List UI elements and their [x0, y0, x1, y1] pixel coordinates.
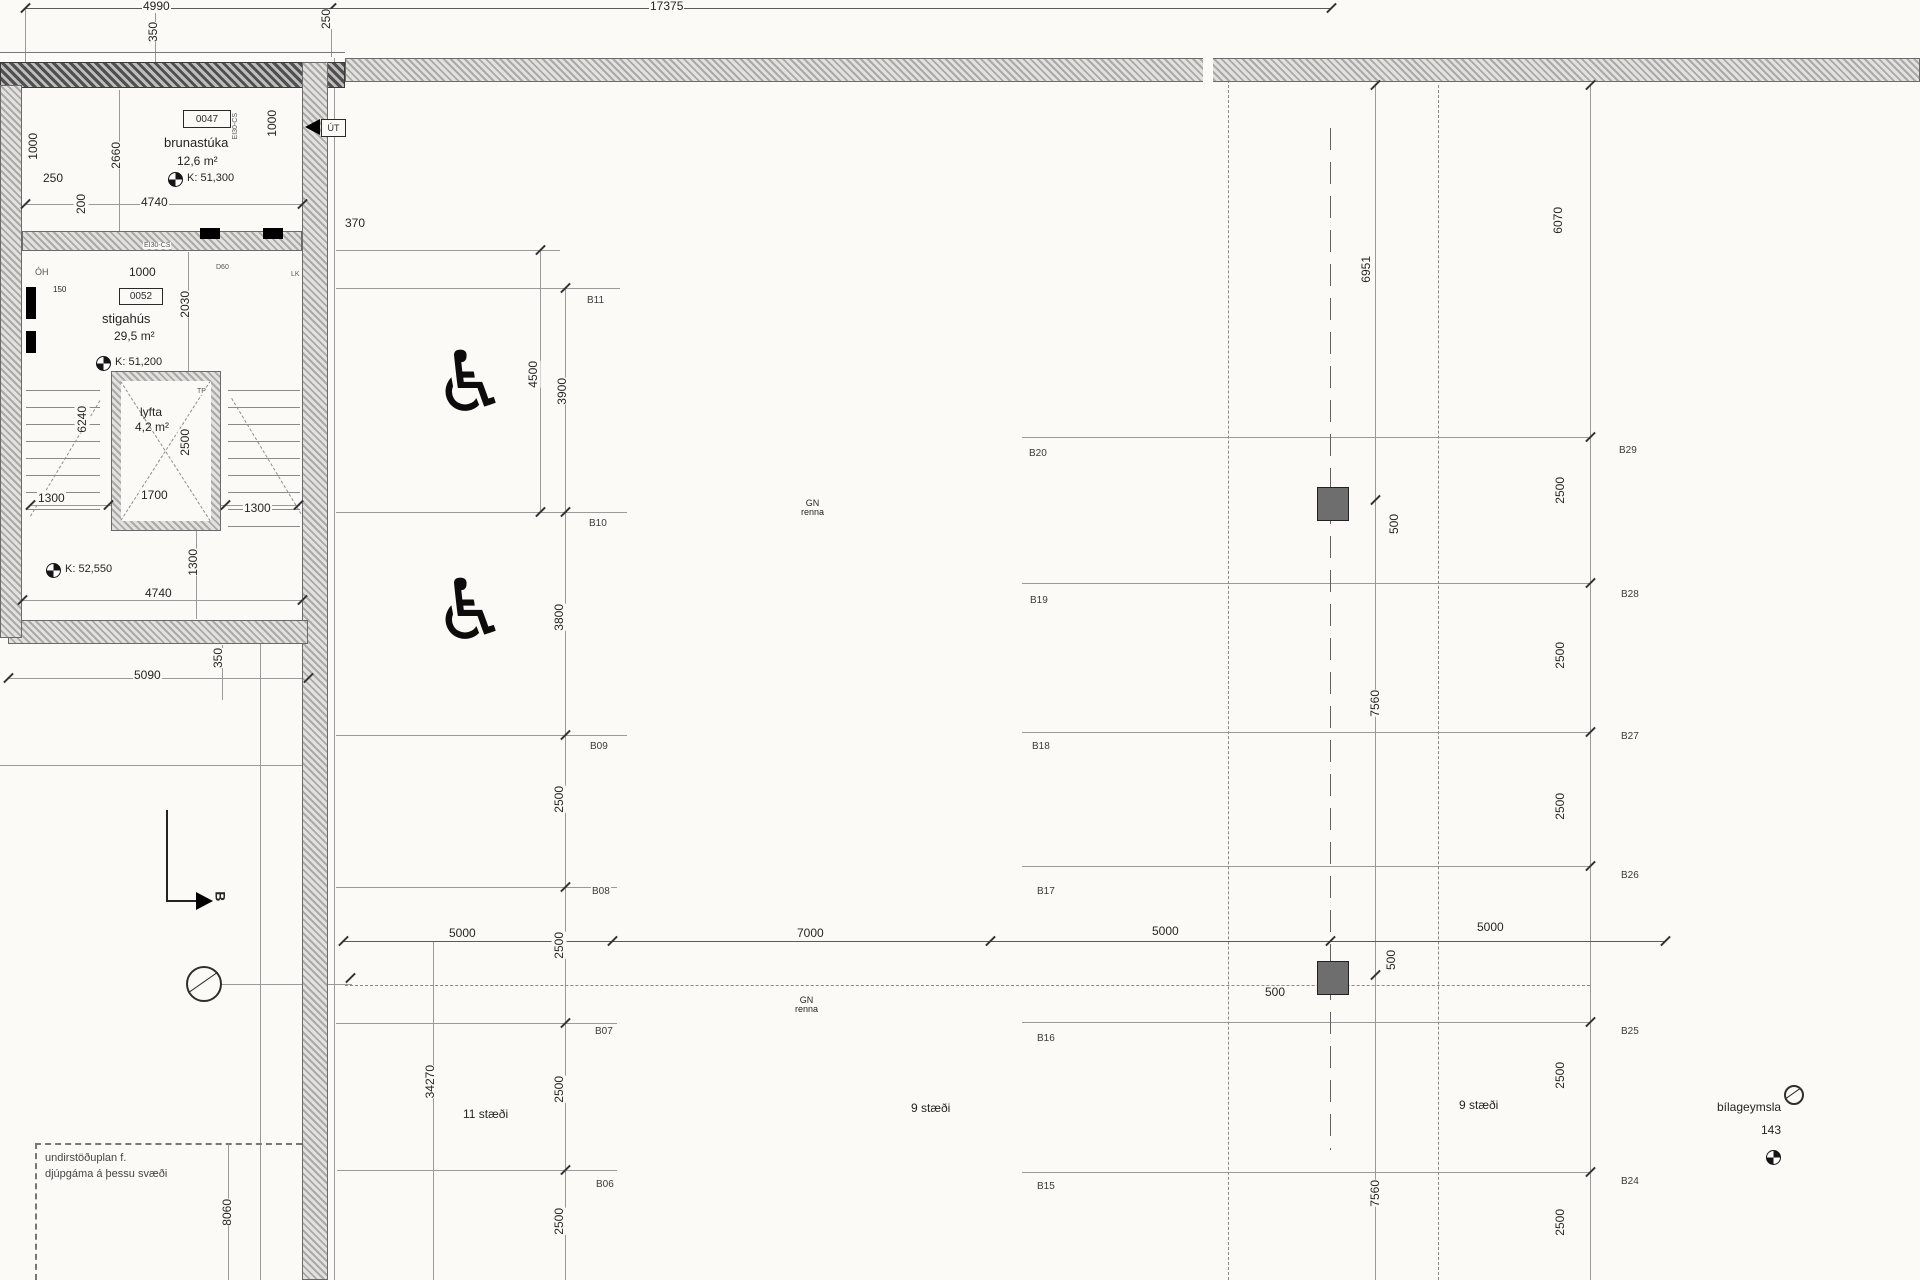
level-marker-icon [96, 356, 111, 371]
grid-label: B27 [1620, 732, 1640, 743]
dim-label: 3900 [555, 378, 570, 405]
dim-label: 17375 [649, 0, 684, 13]
dim-label: 1300 [37, 492, 66, 505]
grid-line [336, 250, 560, 251]
note-box-border [35, 1143, 302, 1145]
grid-label: B17 [1036, 887, 1056, 898]
grid-bubble [1784, 1085, 1804, 1105]
level-marker-icon [46, 563, 61, 578]
exit-label: ÚT [328, 123, 340, 133]
room-name: brunastúka [163, 136, 229, 150]
grid-line [336, 512, 627, 513]
dim-label: 200 [74, 194, 89, 214]
level-value: K: 51,200 [114, 357, 163, 369]
wall-top-left [0, 62, 345, 88]
note-box-border [35, 1143, 37, 1280]
dim-label: 500 [1387, 514, 1402, 534]
grid-line [1022, 1172, 1590, 1173]
grid-line [336, 735, 627, 736]
tag-label: D60 [215, 264, 230, 271]
level-value: K: 52,550 [64, 564, 113, 576]
dim-label: 5000 [1476, 921, 1505, 934]
room-area: 4,2 m² [134, 421, 170, 434]
grid-label: B25 [1620, 1027, 1640, 1038]
dim-label: 1300 [243, 502, 272, 515]
dim-label: 5000 [448, 927, 477, 940]
dim-label: 370 [344, 217, 366, 230]
dim-line [25, 8, 26, 62]
room-number-box: 0047 [183, 110, 231, 128]
room-number: 0047 [196, 114, 218, 125]
grid-label: B09 [589, 742, 609, 753]
parking-count: 9 stæði [910, 1102, 951, 1115]
dim-line [565, 288, 566, 1280]
grid-line [1022, 437, 1590, 438]
grid-label: B16 [1036, 1034, 1056, 1045]
grid-line [1022, 583, 1590, 584]
dim-label: 8060 [220, 1199, 235, 1226]
grid-label: B20 [1028, 449, 1048, 460]
garage-value: 143 [1760, 1124, 1782, 1137]
drain-label-line2: renna [795, 1005, 818, 1014]
dim-label: 250 [319, 9, 334, 29]
dim-label: 5000 [1151, 925, 1180, 938]
grid-label: B28 [1620, 590, 1640, 601]
dim-line [1375, 85, 1376, 1280]
dim-label: 4740 [140, 196, 169, 209]
dim-label: 4990 [142, 0, 171, 13]
dim-label: 2500 [1553, 642, 1568, 669]
dim-label: 1000 [265, 110, 280, 137]
bubble-slash [1785, 1088, 1800, 1099]
tag-label: ÓH [34, 268, 50, 277]
dim-label: 2500 [1553, 793, 1568, 820]
grid-line [1022, 1022, 1590, 1023]
dim-label: 2030 [178, 291, 193, 318]
exit-sign: ÚT [321, 119, 346, 137]
dim-label: 7560 [1368, 690, 1383, 717]
dim-label: 2500 [178, 429, 193, 456]
leader-line [222, 984, 352, 985]
dim-line [1590, 85, 1591, 1280]
drain-label: GN renna [794, 996, 819, 1015]
leader-arrow [345, 973, 356, 984]
grid-label: B08 [591, 887, 611, 898]
dim-line [22, 600, 302, 601]
tag-label: LK [290, 271, 301, 278]
dim-label: 6240 [75, 406, 90, 433]
grid-line [336, 887, 617, 888]
boundary-line [260, 644, 261, 1280]
garage-name: bílageymsla [1716, 1101, 1782, 1114]
grid-label: B07 [594, 1027, 614, 1038]
grid-label: B15 [1036, 1182, 1056, 1193]
wall-edge-line [334, 58, 335, 1280]
level-value: K: 51,300 [186, 173, 235, 185]
grid-label: B11 [586, 296, 605, 307]
room-name: stigahús [101, 312, 151, 326]
door-leaf [26, 287, 36, 319]
dashed-grid-line [1228, 70, 1229, 1280]
room-number: 0052 [130, 291, 152, 302]
room-name: lyfta [139, 406, 163, 419]
wall-gap [1203, 56, 1213, 84]
door-leaf [200, 228, 220, 239]
wall-left [0, 85, 22, 638]
exit-arrow-icon [297, 119, 320, 135]
grid-line [337, 1170, 617, 1171]
dim-label: 350 [146, 22, 161, 42]
grid-line [1022, 866, 1590, 867]
column [1317, 487, 1349, 521]
grid-bubble [186, 966, 222, 1002]
grid-label: B18 [1031, 742, 1051, 753]
dim-label: 500 [1384, 950, 1399, 970]
section-line [166, 810, 168, 902]
wheelchair-icon: ♿ [433, 568, 508, 652]
wheelchair-icon: ♿ [433, 340, 508, 424]
dim-label: 2500 [552, 1208, 567, 1235]
section-arrow-icon [196, 892, 222, 910]
grid-label: B06 [595, 1180, 615, 1191]
wall-top-right [345, 58, 1920, 82]
room-area: 12,6 m² [176, 155, 219, 168]
dim-label: 1000 [128, 266, 157, 279]
dim-label: 2500 [552, 932, 567, 959]
level-marker-icon [1766, 1150, 1781, 1165]
column-centerline [1330, 128, 1331, 1150]
dim-label: 1700 [140, 489, 169, 502]
grid-label: B24 [1620, 1177, 1640, 1188]
tag-label: EI30-CS [143, 242, 171, 249]
dim-label: 2500 [1553, 477, 1568, 504]
floor-plan-drawing: ♿ ♿ ÚT B K: 51,300 K: 51,200 K: 52,550 0… [0, 0, 1920, 1280]
section-line [166, 900, 200, 902]
grid-label: B29 [1618, 446, 1638, 457]
wall-stair-right [302, 62, 328, 1280]
dim-label: 2500 [1553, 1062, 1568, 1089]
grid-label: B19 [1029, 596, 1049, 607]
dim-label: 1000 [26, 133, 41, 160]
dim-label: 6951 [1359, 256, 1374, 283]
aisle-dashed-line [345, 985, 1590, 986]
dim-line [343, 941, 1665, 942]
grid-line [336, 288, 620, 289]
dim-line [433, 941, 434, 1280]
dashed-grid-line [1438, 85, 1439, 1280]
door-leaf [26, 331, 36, 353]
wall-line [0, 52, 345, 53]
dim-label: 2500 [1553, 1209, 1568, 1236]
wall-stair-bottom [8, 620, 308, 644]
dim-label: 7560 [1368, 1180, 1383, 1207]
dim-label: 250 [42, 172, 64, 185]
drain-label-line2: renna [801, 508, 824, 517]
dim-label: 4500 [526, 361, 541, 388]
note-line2: djúpgáma á þessu svæði [44, 1169, 168, 1181]
dim-label: 5090 [133, 669, 162, 682]
dim-label: 4740 [144, 587, 173, 600]
door-leaf [263, 228, 283, 239]
tag-label: EI30-CS [231, 113, 240, 139]
room-number-box: 0052 [119, 288, 163, 305]
grid-line [1022, 732, 1590, 733]
parking-count: 9 stæði [1458, 1099, 1499, 1112]
dim-label: 3800 [552, 604, 567, 631]
drain-label: GN renna [800, 499, 825, 518]
dim-label: 2500 [552, 786, 567, 813]
room-area: 29,5 m² [113, 330, 156, 343]
dim-label: 34270 [423, 1065, 438, 1098]
level-marker-icon [168, 172, 183, 187]
grid-line [336, 1023, 617, 1024]
dim-label: 150 [52, 286, 67, 294]
parking-count: 11 stæði [462, 1108, 509, 1121]
grid-label: B26 [1620, 871, 1640, 882]
dim-label: 7000 [796, 927, 825, 940]
dim-label: 2500 [552, 1076, 567, 1103]
note-line1: undirstöðuplan f. [44, 1153, 127, 1165]
dim-label: 350 [211, 648, 226, 668]
bubble-slash [188, 972, 218, 993]
tag-label: TP [196, 388, 207, 395]
boundary-line [0, 765, 302, 766]
column [1317, 961, 1349, 995]
dim-label: 6070 [1551, 207, 1566, 234]
dim-label: 500 [1264, 986, 1286, 999]
dim-label: 2660 [109, 142, 124, 169]
dim-label: 1300 [186, 549, 201, 576]
grid-label: B10 [588, 519, 608, 530]
